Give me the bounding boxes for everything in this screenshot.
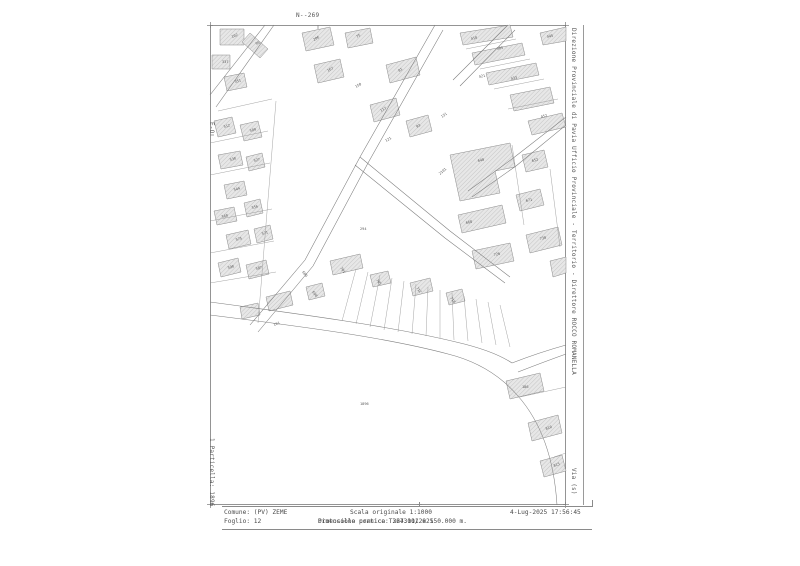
road-line: [512, 345, 566, 363]
parcel-number-label: 421: [478, 74, 485, 79]
cadastral-map: 1029933735120616775811179341040543344545…: [210, 25, 566, 505]
orientation-margin-label: E-O: [208, 122, 215, 133]
parcel-boundary-line: [464, 296, 468, 341]
building-footprint: [550, 257, 566, 277]
building-footprint: [446, 289, 465, 305]
parcel-boundary-line: [210, 272, 276, 283]
map-info-bar: Comune: (PV) ZEME Foglio: 12 Scala origi…: [222, 506, 592, 530]
protocol-label: Protocollo pratica T324311/2025: [318, 518, 433, 526]
parcel-number-label: 186: [522, 385, 529, 389]
parcel-boundary-line: [426, 287, 428, 336]
parcel-number-label: 161: [273, 321, 280, 327]
particella-margin-text: 1 Particella: 1896: [208, 438, 215, 507]
parcel-boundary-line: [488, 302, 496, 345]
parcel-number-label: 433: [510, 76, 517, 81]
parcel-number-label: 337: [222, 60, 229, 64]
foglio-label: Foglio: 12: [224, 518, 261, 526]
building-footprint: [345, 28, 373, 48]
scale-label: Scala originale 1:1000: [350, 509, 432, 517]
right-margin-rule: [583, 25, 584, 505]
parcel-number-label: 689: [301, 270, 308, 278]
building-footprint: [410, 278, 433, 296]
building-footprint: [330, 254, 363, 275]
tick-mark: [592, 500, 593, 507]
comune-label: Comune: (PV) ZEME: [224, 509, 287, 517]
timestamp-label: 4-Lug-2025 17:56:45: [510, 509, 581, 517]
building-footprint: [450, 143, 515, 201]
parcel-boundary-line: [512, 145, 524, 225]
building-footprint: [242, 33, 268, 58]
office-margin-text: Direzione Provinciale di Pavia Ufficio P…: [570, 28, 577, 375]
parcel-number-label: 1896: [360, 402, 369, 406]
parcel-number-label: 150: [355, 82, 363, 89]
parcel-number-label: 2101: [438, 167, 447, 176]
parcel-number-label: 131: [440, 112, 448, 119]
parcel-boundary-line: [500, 305, 510, 347]
parcel-boundary-line: [398, 281, 404, 332]
parcel-boundary-line: [476, 299, 482, 343]
map-area: 1029933735120616775811179341040543344545…: [210, 25, 566, 505]
map-content-layer: 1029933735120616775811179341040543344545…: [210, 25, 566, 505]
cadastral-map-sheet: N--269 102: [0, 0, 800, 566]
building-footprint: [458, 205, 506, 233]
parcel-boundary-line: [218, 99, 272, 111]
map-grid-label: N--269: [296, 12, 356, 19]
tick-mark: [417, 504, 422, 505]
parcel-boundary-line: [384, 278, 392, 330]
road-line: [210, 315, 557, 505]
parcel-number-label: 294: [360, 227, 367, 231]
parcel-boundary-line: [356, 272, 368, 324]
parcel-number-label: 121: [385, 136, 393, 143]
street-name-margin-text: Via (s): [570, 468, 577, 495]
road-line: [518, 354, 566, 372]
parcel-boundary-line: [342, 269, 356, 321]
